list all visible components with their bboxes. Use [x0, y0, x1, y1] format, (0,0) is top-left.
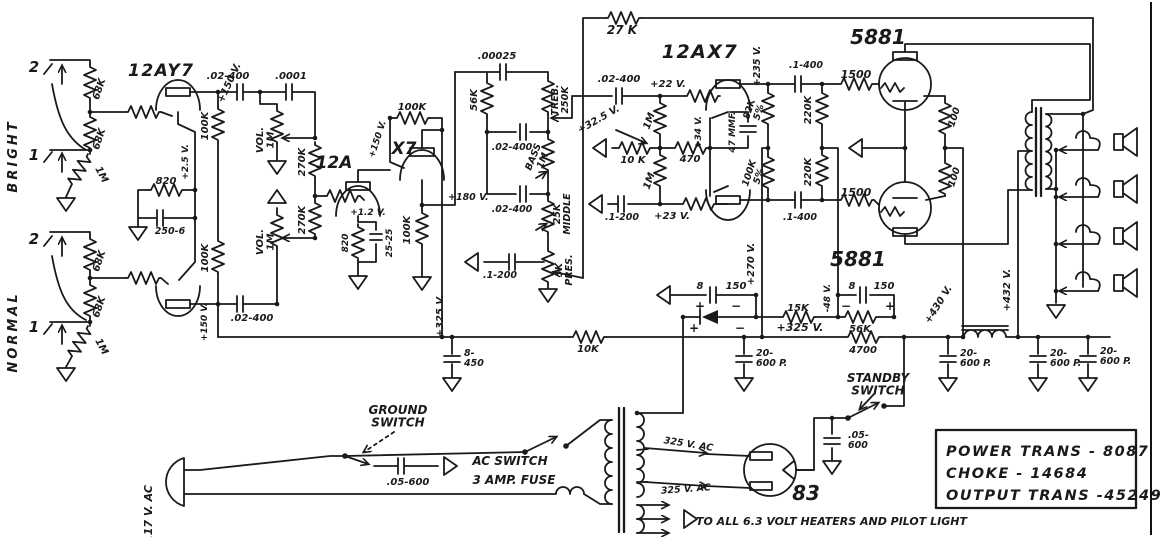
bias-voltage-arrow — [616, 130, 646, 143]
resistor-label: 10K — [577, 344, 600, 355]
mains-voltage-label: 117 V. AC — [142, 485, 155, 537]
jack-label: 2 — [29, 58, 39, 76]
resistor-label: 1500 — [841, 186, 872, 199]
polarity-mark: + — [885, 299, 895, 313]
resistor-label: 100K — [200, 242, 211, 272]
ground-switch-blade — [345, 456, 368, 464]
resistor-label: 220K — [803, 94, 814, 124]
jack-label: 1 — [29, 146, 39, 164]
tube-5881-1 — [879, 52, 931, 110]
polarity-mark: − — [731, 299, 741, 313]
voltage-label: +150 V. — [216, 61, 244, 104]
resistor-label: 100K — [398, 102, 428, 113]
capacitor-label: 47 MMF. — [728, 111, 738, 153]
switch-label-ac: AC SWITCH — [471, 454, 547, 468]
voltage-label: +432 V. — [1002, 269, 1013, 312]
capacitor-label: .02-400 — [207, 71, 250, 82]
resistor-label-feedback: 27 K — [607, 23, 639, 37]
voltage-label: +430 V. — [923, 284, 955, 326]
pot-label-middle: 25KMIDDLE — [552, 193, 573, 235]
voltage-label: +325 V. — [777, 321, 824, 334]
voltage-label: +150 V. — [367, 120, 388, 160]
speaker-3 — [1114, 222, 1137, 250]
channel-label-bright: BRIGHT — [6, 119, 21, 192]
polarity-mark: + — [695, 299, 705, 313]
jack-label: 2 — [29, 230, 39, 248]
capacitor-label: 8-450 — [463, 348, 484, 369]
speaker-1 — [1114, 128, 1137, 156]
voltage-label: +235 V. — [752, 46, 763, 87]
tube-label-83: 83 — [792, 481, 820, 505]
resistor-label: 1M — [92, 337, 110, 357]
switch-label-ground: GROUNDSWITCH — [368, 403, 427, 430]
capacitor-label: 20-600 P. — [960, 348, 991, 369]
voltage-label: +22 V. — [650, 79, 686, 90]
capacitor-label: 150 — [874, 281, 895, 292]
resistor-label: 1M — [642, 171, 658, 191]
tube-label-12ay7: 12AY7 — [128, 61, 195, 81]
capacitor-label: .05-600 — [848, 430, 869, 451]
speaker-4 — [1114, 269, 1137, 297]
pot-label-treble: TREB.250K — [550, 84, 571, 115]
resistor-label: 820 — [156, 176, 177, 187]
capacitor-label: 250-6 — [155, 226, 186, 237]
jack-label: 1 — [29, 318, 39, 336]
parts-line-3: OUTPUT TRANS -45249 — [946, 488, 1160, 504]
polarity-mark: − — [841, 299, 851, 313]
channel-label-normal: NORMAL — [6, 291, 21, 372]
voltage-label: +180 V. — [448, 192, 489, 203]
parts-list-box: POWER TRANS - 8087 CHOKE - 14684 OUTPUT … — [936, 430, 1160, 508]
capacitor-label: .1-400 — [789, 60, 823, 71]
heaters-note: TO ALL 6.3 VOLT HEATERS AND PILOT LIGHT — [696, 515, 968, 528]
capacitor-label: .02-400 — [492, 142, 533, 153]
resistor-label: 100 — [946, 166, 963, 189]
voltage-label: +150 V. — [200, 303, 210, 341]
capacitor-label: 8 — [849, 281, 856, 292]
tube-label-12ax7-b: X7 — [391, 139, 417, 159]
switch-label-standby: STANDBYSWITCH — [847, 371, 911, 398]
resistor-label: 100K — [200, 110, 211, 140]
polarity-mark: + — [689, 321, 699, 335]
tube-83-rectifier — [744, 444, 796, 496]
voltage-label: +270 V. — [746, 243, 757, 286]
ot-secondary-winding — [1046, 114, 1052, 189]
capacitor-label: .05-600 — [387, 477, 430, 488]
tube-label-5881-2: 5881 — [830, 247, 886, 271]
ac-switch-blade — [525, 437, 556, 452]
voltage-label: +34 V. — [694, 116, 704, 148]
resistor-label: 56K — [849, 324, 872, 335]
voltage-label: +1.2 V. — [350, 208, 386, 218]
capacitor-label: .1-400 — [783, 212, 817, 223]
voltage-label: -48 V. — [823, 284, 833, 312]
voltage-label: +2.5 V. — [181, 144, 191, 180]
voltage-label: 325 V. AC — [661, 482, 712, 496]
tube-12ay7-b — [156, 286, 200, 316]
ground-switch-label-arrow — [364, 432, 394, 452]
capacitor-label: .02-400 — [492, 204, 533, 215]
tube-12ay7-a — [156, 80, 200, 110]
resistor-label: 470 — [679, 154, 701, 165]
speaker-2 — [1114, 175, 1137, 203]
capacitor-label: 20-600 P. — [1050, 348, 1081, 369]
capacitor-label: .0001 — [275, 71, 307, 82]
pot-label-presence: 5KPRES. — [554, 254, 575, 285]
voltage-label: +325 V. — [435, 295, 446, 338]
resistor-label: 820 — [341, 234, 351, 253]
resistor-label: 1M — [92, 165, 110, 185]
resistor-label: 270K — [297, 204, 308, 234]
capacitor-label: .1-200 — [605, 212, 639, 223]
schematic-page: POWER TRANS - 8087 CHOKE - 14684 OUTPUT … — [0, 0, 1160, 537]
resistor-label: 4700 — [848, 345, 877, 356]
capacitor-label: 25-25 — [385, 229, 395, 258]
resistor-label: 220K — [803, 156, 814, 186]
voltage-label: +23 V. — [654, 211, 690, 222]
tube-5881-2 — [879, 182, 931, 236]
amp-schematic: POWER TRANS - 8087 CHOKE - 14684 OUTPUT … — [0, 0, 1160, 537]
capacitor-label: 20-600 P. — [756, 348, 787, 369]
fuse-label: 3 AMP. FUSE — [473, 473, 557, 487]
ot-core — [1036, 108, 1041, 196]
capacitor-label: .02-400 — [231, 313, 274, 324]
pt-hv-winding — [637, 413, 644, 497]
resistor-label: 100K — [402, 214, 413, 244]
polarity-mark: − — [735, 321, 745, 335]
wires-inputs — [44, 60, 172, 367]
capacitor-label: 8 — [697, 281, 704, 292]
junction-dots — [88, 82, 1091, 459]
tube-label-5881-1: 5881 — [850, 25, 906, 49]
capacitor-label: .00025 — [478, 51, 517, 62]
resistor-label: 10 K — [620, 155, 646, 166]
resistor-label: 1500 — [841, 68, 872, 81]
speakers — [1114, 128, 1137, 297]
tube-label-12ax7-pi: 12AX7 — [662, 41, 739, 63]
pt-primary-winding — [605, 420, 612, 504]
resistor-label: 15K — [787, 303, 810, 314]
bass-wiper — [536, 172, 546, 178]
pt-core — [619, 408, 624, 532]
capacitor-label: 20-600 P. — [1100, 346, 1131, 367]
parts-line-2: CHOKE - 14684 — [946, 466, 1088, 482]
resistor-label: 1M — [642, 111, 658, 131]
resistor-label: 56K — [469, 88, 480, 111]
capacitor-label: .02-400 — [598, 74, 641, 85]
capacitor-label: 150 — [726, 281, 747, 292]
capacitor-label: .1-200 — [483, 270, 517, 281]
resistor-label: 270K — [297, 146, 308, 176]
parts-line-1: POWER TRANS - 8087 — [946, 444, 1149, 460]
output-transformer — [1026, 108, 1052, 196]
tube-label-12ax7-a: 12A — [316, 153, 353, 173]
resistor-label: 100 — [946, 106, 963, 129]
